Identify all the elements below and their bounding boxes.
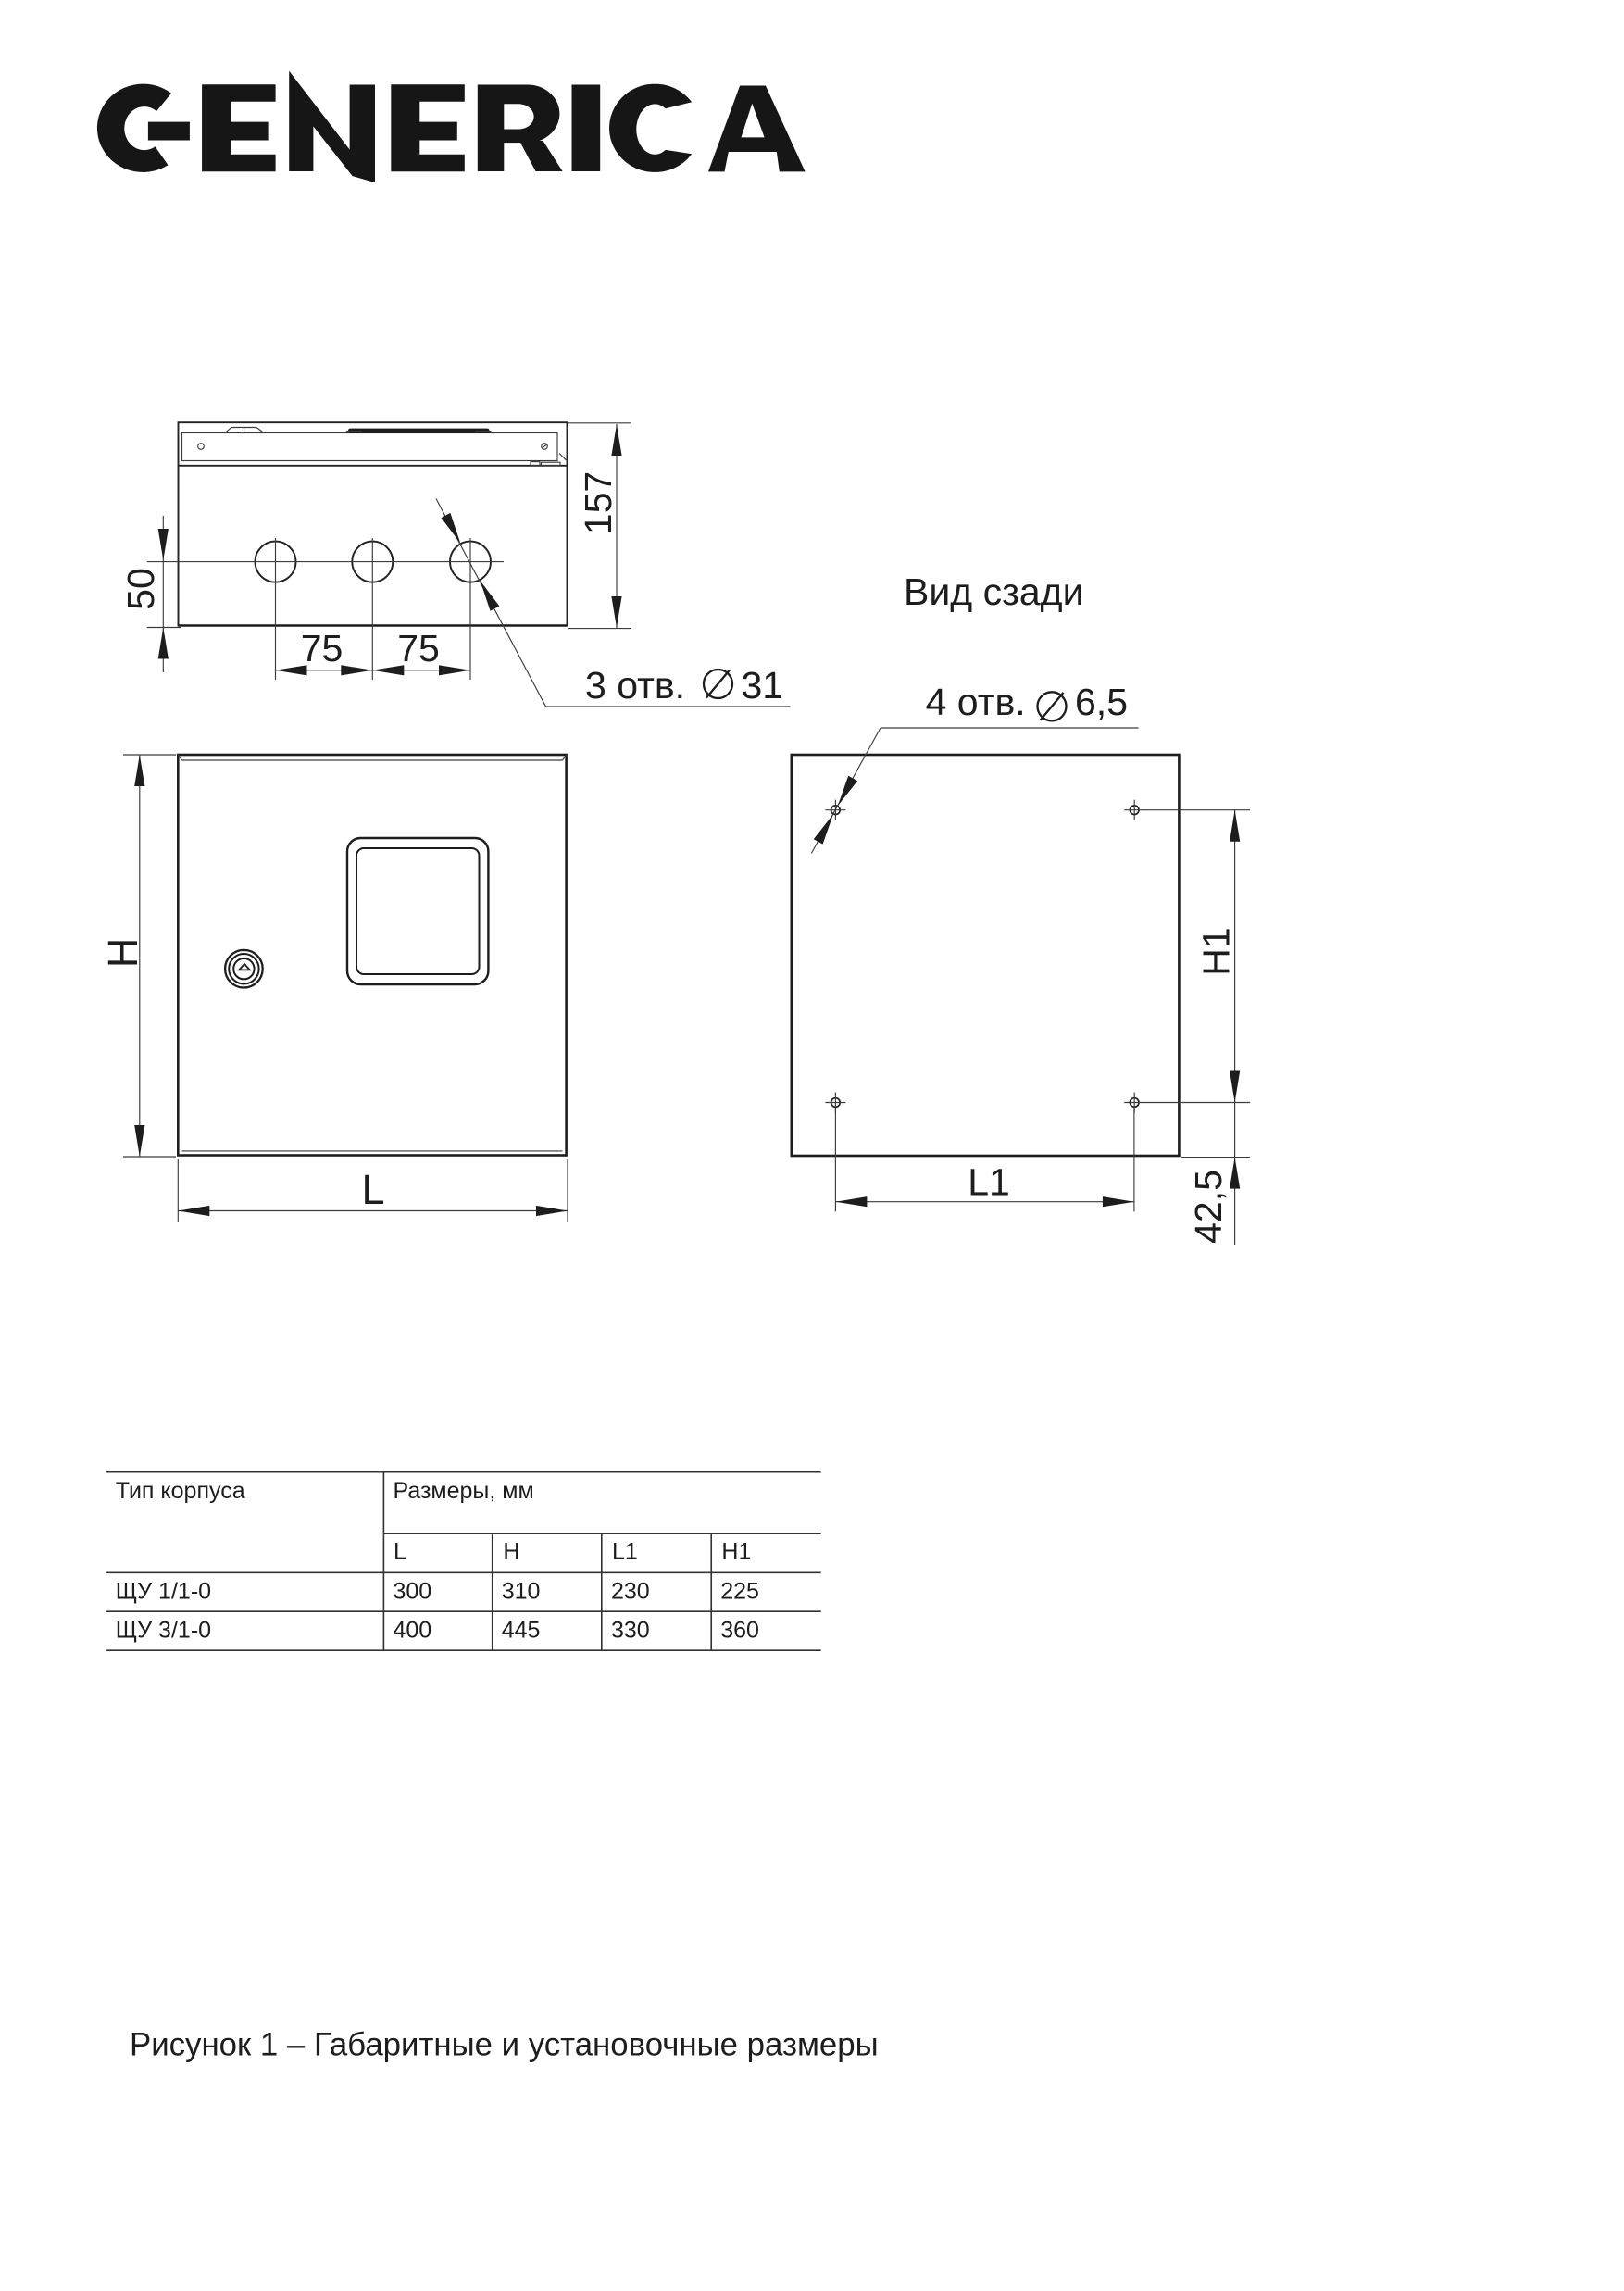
svg-text:360: 360: [720, 1618, 759, 1644]
svg-text:H1: H1: [721, 1539, 751, 1565]
svg-text:Тип корпуса: Тип корпуса: [116, 1478, 245, 1504]
svg-text:L1: L1: [968, 1161, 1010, 1204]
svg-text:6,5: 6,5: [1075, 681, 1128, 723]
svg-text:42,5: 42,5: [1187, 1170, 1230, 1244]
svg-text:L: L: [394, 1539, 406, 1565]
svg-text:225: 225: [720, 1579, 759, 1605]
svg-text:157: 157: [577, 471, 619, 534]
svg-text:400: 400: [394, 1618, 432, 1644]
svg-text:4 отв.: 4 отв.: [926, 681, 1026, 723]
svg-text:Рисунок 1 – Габаритные и устан: Рисунок 1 – Габаритные и установочные ра…: [130, 2027, 879, 2063]
svg-text:3 отв.: 3 отв.: [585, 664, 685, 707]
svg-text:300: 300: [394, 1579, 432, 1605]
svg-text:75: 75: [301, 627, 344, 670]
svg-text:31: 31: [742, 664, 784, 707]
svg-text:230: 230: [611, 1579, 650, 1605]
svg-text:ЩУ 3/1-0: ЩУ 3/1-0: [116, 1618, 211, 1644]
svg-text:Размеры, мм: Размеры, мм: [394, 1478, 534, 1504]
svg-text:445: 445: [502, 1618, 541, 1644]
svg-text:H: H: [503, 1539, 519, 1565]
svg-text:75: 75: [397, 627, 440, 670]
svg-text:50: 50: [119, 568, 162, 610]
svg-text:L: L: [361, 1166, 384, 1213]
svg-text:H1: H1: [1195, 927, 1238, 975]
svg-text:L1: L1: [612, 1539, 638, 1565]
svg-text:Вид сзади: Вид сзади: [904, 570, 1084, 613]
svg-text:310: 310: [502, 1579, 541, 1605]
svg-text:H: H: [99, 938, 146, 969]
svg-text:ЩУ 1/1-0: ЩУ 1/1-0: [116, 1579, 211, 1605]
svg-text:330: 330: [611, 1618, 650, 1644]
